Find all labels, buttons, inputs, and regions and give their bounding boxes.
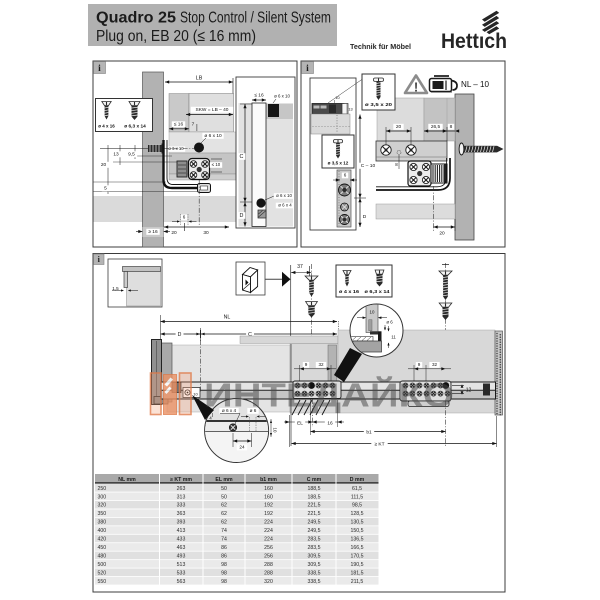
svg-text:533: 533 — [177, 570, 186, 576]
svg-text:!: ! — [414, 80, 418, 95]
svg-text:256: 256 — [264, 545, 273, 551]
svg-text:ø 6 x 10: ø 6 x 10 — [274, 94, 290, 99]
svg-text:9: 9 — [418, 362, 421, 367]
svg-text:20: 20 — [101, 162, 107, 168]
svg-text:256: 256 — [264, 553, 273, 559]
svg-text:224: 224 — [264, 528, 273, 534]
svg-text:313: 313 — [177, 494, 186, 500]
svg-text:493: 493 — [177, 553, 186, 559]
svg-text:393: 393 — [177, 520, 186, 526]
svg-text:EL mm: EL mm — [215, 477, 233, 483]
svg-text:263: 263 — [177, 486, 186, 492]
svg-text:6: 6 — [183, 215, 186, 220]
svg-text:b1: b1 — [366, 430, 372, 436]
svg-text:20: 20 — [171, 230, 177, 236]
svg-text:221,5: 221,5 — [308, 511, 321, 517]
svg-text:20: 20 — [439, 231, 445, 237]
svg-text:≥ KT: ≥ KT — [374, 442, 384, 448]
svg-text:413: 413 — [177, 528, 186, 534]
svg-text:16: 16 — [327, 420, 333, 426]
svg-text:86: 86 — [221, 553, 227, 559]
svg-text:160: 160 — [264, 494, 273, 500]
svg-text:61,5: 61,5 — [352, 486, 362, 492]
svg-text:224: 224 — [264, 537, 273, 543]
svg-text:433: 433 — [177, 537, 186, 543]
svg-text:136,5: 136,5 — [351, 537, 364, 543]
svg-text:26,5: 26,5 — [431, 124, 441, 130]
svg-text:LB: LB — [196, 76, 203, 82]
svg-text:250: 250 — [98, 486, 107, 492]
svg-text:550: 550 — [98, 579, 107, 585]
svg-text:320: 320 — [264, 579, 273, 585]
svg-text:98: 98 — [221, 562, 227, 568]
svg-text:224: 224 — [264, 520, 273, 526]
svg-text:37: 37 — [297, 264, 303, 270]
svg-text:32: 32 — [318, 362, 324, 367]
svg-text:Quadro 25: Quadro 25 — [96, 10, 176, 27]
svg-text:98: 98 — [221, 570, 227, 576]
svg-text:Technik für Möbel: Technik für Möbel — [350, 42, 411, 51]
svg-text:ø 6,3 x 14: ø 6,3 x 14 — [365, 289, 390, 294]
svg-text:211,5: 211,5 — [351, 579, 364, 585]
svg-text:170,5: 170,5 — [351, 553, 364, 559]
svg-text:SKW = LB – 40: SKW = LB – 40 — [196, 107, 229, 113]
svg-text:≥ 16: ≥ 16 — [148, 229, 158, 235]
svg-text:249,5: 249,5 — [308, 528, 321, 534]
svg-text:192: 192 — [264, 511, 273, 517]
svg-text:249,5: 249,5 — [308, 520, 321, 526]
svg-text:62: 62 — [221, 511, 227, 517]
svg-text:333: 333 — [177, 503, 186, 509]
svg-text:32: 32 — [432, 362, 438, 367]
svg-text:74: 74 — [221, 528, 227, 534]
svg-text:7: 7 — [192, 122, 195, 128]
svg-text:ø 4 x 16: ø 4 x 16 — [98, 124, 115, 129]
svg-text:ø 6: ø 6 — [386, 320, 393, 325]
svg-text:160: 160 — [264, 486, 273, 492]
svg-text:NL: NL — [224, 315, 231, 321]
svg-text:62: 62 — [221, 503, 227, 509]
svg-text:ø 6 x 10: ø 6 x 10 — [204, 133, 222, 139]
svg-text:Hettıch: Hettıch — [441, 30, 507, 53]
svg-text:309,5: 309,5 — [308, 553, 321, 559]
svg-text:363: 363 — [177, 511, 186, 517]
svg-text:463: 463 — [177, 545, 186, 551]
svg-text:13: 13 — [348, 108, 352, 112]
svg-text:ИНТЕДАЙКО: ИНТЕДАЙКО — [204, 376, 454, 414]
svg-text:30: 30 — [203, 230, 209, 236]
svg-text:283,5: 283,5 — [308, 537, 321, 543]
svg-text:24: 24 — [239, 445, 245, 450]
svg-text:188,5: 188,5 — [308, 486, 321, 492]
svg-text:513: 513 — [177, 562, 186, 568]
svg-text:10: 10 — [335, 96, 339, 100]
svg-text:500: 500 — [98, 562, 107, 568]
svg-text:ø 3,5 x 20: ø 3,5 x 20 — [365, 102, 393, 107]
svg-text:C mm: C mm — [307, 477, 322, 483]
svg-text:190,5: 190,5 — [351, 562, 364, 568]
svg-text:50: 50 — [221, 494, 227, 500]
svg-text:150,5: 150,5 — [351, 528, 364, 534]
svg-text:520: 520 — [98, 570, 107, 576]
svg-text:10: 10 — [370, 310, 375, 315]
svg-text:563: 563 — [177, 579, 186, 585]
svg-text:320: 320 — [98, 503, 107, 509]
svg-text:338,5: 338,5 — [308, 570, 321, 576]
svg-text:309,5: 309,5 — [308, 562, 321, 568]
svg-text:480: 480 — [98, 553, 107, 559]
svg-text:Stop Control / Silent System: Stop Control / Silent System — [180, 10, 331, 27]
svg-text:74: 74 — [221, 537, 227, 543]
svg-text:283,5: 283,5 — [308, 545, 321, 551]
svg-text:≤ 10: ≤ 10 — [212, 162, 221, 167]
svg-text:350: 350 — [98, 511, 107, 517]
svg-text:10: 10 — [193, 391, 198, 396]
svg-text:5: 5 — [104, 186, 107, 192]
svg-text:192: 192 — [264, 503, 273, 509]
svg-text:420: 420 — [98, 537, 107, 543]
svg-text:D mm: D mm — [350, 477, 365, 483]
svg-text:12: 12 — [466, 388, 472, 394]
svg-text:181,5: 181,5 — [351, 570, 364, 576]
svg-text:ø 6,3 x 14: ø 6,3 x 14 — [124, 124, 146, 129]
svg-text:128,5: 128,5 — [351, 511, 364, 517]
svg-text:NL – 10: NL – 10 — [461, 80, 490, 89]
svg-text:C: C — [240, 154, 244, 160]
svg-text:98: 98 — [221, 579, 227, 585]
svg-text:i: i — [306, 64, 309, 74]
svg-text:D: D — [240, 213, 244, 219]
svg-text:11: 11 — [391, 335, 396, 340]
svg-text:6: 6 — [344, 173, 347, 178]
svg-text:i: i — [98, 64, 101, 74]
svg-text:≤ 16: ≤ 16 — [174, 122, 184, 128]
svg-text:Plug on, EB 20 (≤ 16 mm): Plug on, EB 20 (≤ 16 mm) — [96, 28, 256, 45]
svg-text:338,5: 338,5 — [308, 579, 321, 585]
svg-text:13: 13 — [113, 152, 119, 158]
svg-text:ø 6 x 4: ø 6 x 4 — [278, 203, 292, 208]
svg-text:98,5: 98,5 — [352, 503, 362, 509]
svg-text:288: 288 — [264, 562, 273, 568]
svg-text:380: 380 — [98, 520, 107, 526]
svg-text:NL mm: NL mm — [118, 477, 136, 483]
svg-text:166,5: 166,5 — [351, 545, 364, 551]
svg-text:111,5: 111,5 — [351, 494, 363, 500]
svg-text:b1 mm: b1 mm — [260, 477, 277, 483]
svg-text:ø 6 x 10: ø 6 x 10 — [276, 193, 292, 198]
svg-text:9: 9 — [305, 362, 308, 367]
svg-text:8: 8 — [450, 124, 453, 130]
svg-text:86: 86 — [221, 545, 227, 551]
svg-text:50: 50 — [221, 486, 227, 492]
svg-text:130,5: 130,5 — [351, 520, 364, 526]
svg-text:10: 10 — [273, 428, 278, 433]
svg-text:ø 4 x 16: ø 4 x 16 — [339, 289, 359, 294]
svg-text:D: D — [363, 214, 367, 220]
svg-text:400: 400 — [98, 528, 107, 534]
svg-text:20: 20 — [396, 124, 402, 130]
svg-text:221,5: 221,5 — [308, 503, 321, 509]
svg-text:C – 10: C – 10 — [361, 163, 376, 169]
svg-text:≥ KT mm: ≥ KT mm — [170, 477, 192, 483]
svg-text:9,5: 9,5 — [128, 152, 135, 158]
svg-text:288: 288 — [264, 570, 273, 576]
svg-text:D: D — [178, 332, 182, 338]
svg-text:ø 3,5 x 12: ø 3,5 x 12 — [328, 161, 349, 166]
svg-text:EL: EL — [297, 420, 303, 426]
svg-text:≤ 16: ≤ 16 — [254, 93, 264, 99]
svg-text:62: 62 — [221, 520, 227, 526]
svg-text:450: 450 — [98, 545, 107, 551]
svg-text:300: 300 — [98, 494, 107, 500]
svg-text:188,5: 188,5 — [308, 494, 321, 500]
